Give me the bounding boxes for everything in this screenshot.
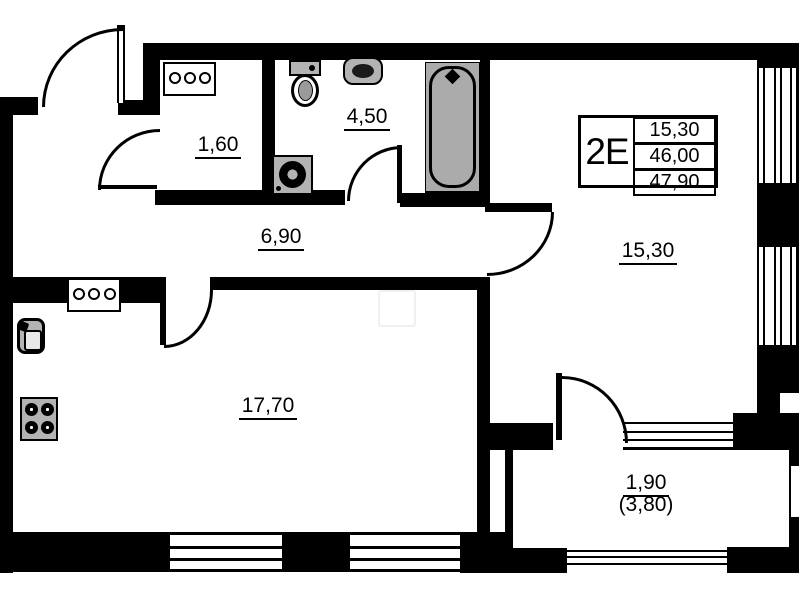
unit-info-block: 2E 15,30 46,00 47,90 bbox=[578, 115, 718, 188]
window bbox=[623, 422, 733, 450]
room-door-leaf bbox=[485, 203, 552, 212]
room-label-balcony-total: (3,80) bbox=[619, 493, 674, 516]
balcony-window-line bbox=[789, 463, 791, 520]
unit-area-room: 15,30 bbox=[633, 117, 716, 144]
closet-door-arc bbox=[98, 129, 160, 190]
bathtub-icon bbox=[425, 62, 480, 192]
room-label-balcony: 1,90 (3,80) bbox=[586, 472, 706, 516]
wash-basin-icon bbox=[343, 57, 383, 85]
wall bbox=[757, 183, 799, 247]
wall bbox=[282, 532, 350, 572]
electrical-panel-icon bbox=[163, 62, 216, 96]
wall bbox=[210, 277, 488, 290]
balcony-door-arc bbox=[562, 376, 628, 443]
wall bbox=[757, 345, 799, 393]
entrance-door-arc bbox=[42, 28, 123, 107]
wall bbox=[0, 97, 13, 573]
unit-type: 2E bbox=[581, 118, 633, 185]
room-label-kitchen-living: 17,70 bbox=[210, 395, 326, 417]
window bbox=[757, 68, 799, 183]
wall bbox=[0, 532, 170, 572]
floor-plan: 1,60 4,50 6,90 15,30 17,70 1,90 (3,80) 2… bbox=[0, 0, 799, 600]
wall bbox=[757, 43, 799, 68]
wall bbox=[505, 448, 513, 552]
wall bbox=[490, 423, 553, 450]
wall bbox=[143, 43, 758, 60]
toilet-bowl-icon bbox=[291, 74, 319, 107]
room-door-arc bbox=[487, 212, 554, 276]
window bbox=[350, 532, 460, 572]
wall bbox=[155, 190, 345, 205]
room-label-hallway: 6,90 bbox=[233, 226, 329, 248]
wall bbox=[477, 277, 490, 545]
stove-icon bbox=[20, 397, 58, 441]
wall bbox=[727, 547, 799, 573]
room-label-room: 15,30 bbox=[590, 240, 706, 262]
room-label-bathroom: 4,50 bbox=[319, 106, 415, 128]
electrical-panel-icon bbox=[67, 278, 121, 312]
wall bbox=[733, 413, 799, 450]
wall bbox=[425, 190, 490, 207]
window bbox=[170, 532, 282, 572]
washing-machine-icon bbox=[272, 155, 313, 195]
wall bbox=[505, 548, 567, 573]
window bbox=[757, 247, 799, 345]
wall bbox=[789, 517, 799, 548]
wall bbox=[0, 97, 38, 115]
room-label-closet: 1,60 bbox=[170, 134, 266, 156]
wall bbox=[480, 60, 490, 192]
unit-area-living: 46,00 bbox=[633, 143, 716, 170]
kitchen-sink-icon bbox=[17, 318, 45, 354]
kitchen-door-arc bbox=[164, 290, 213, 348]
unit-area-total: 47,90 bbox=[633, 169, 716, 196]
bathroom-door-arc bbox=[347, 146, 402, 201]
window bbox=[567, 550, 727, 565]
watermark bbox=[378, 290, 416, 327]
